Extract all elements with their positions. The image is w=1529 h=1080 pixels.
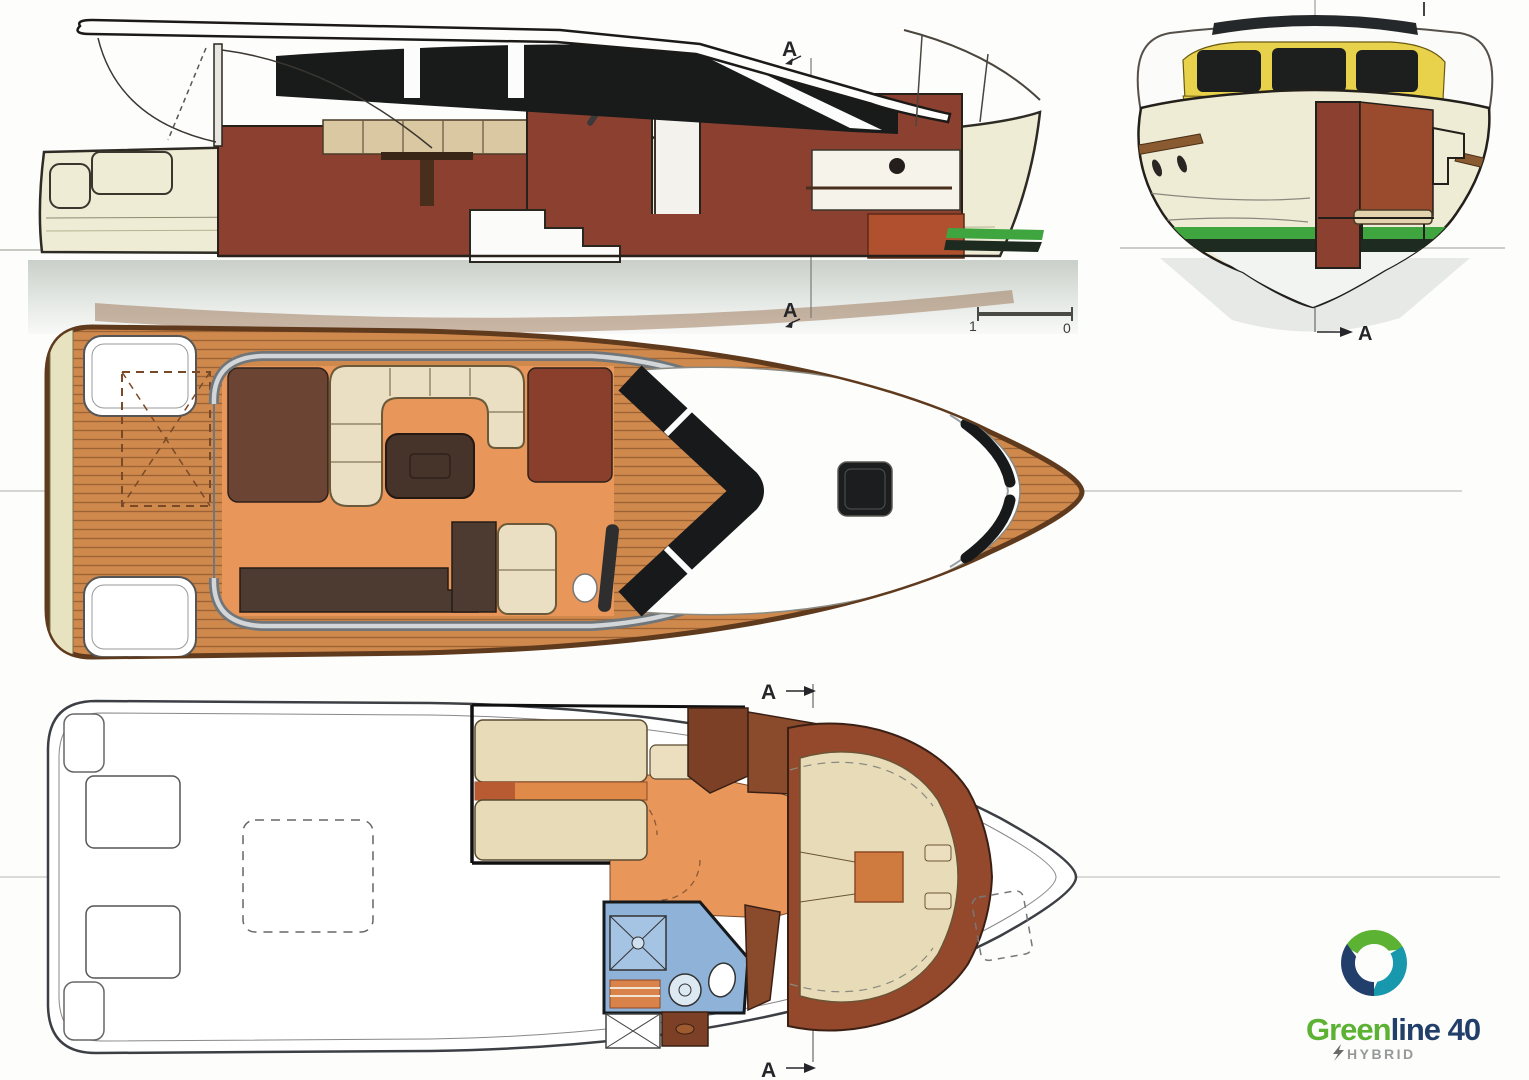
stern-seat-port <box>84 336 196 416</box>
engine-hatch-1 <box>86 776 180 848</box>
berth-runner <box>855 852 903 902</box>
scale-right-label: 0 <box>1063 320 1071 336</box>
brand-tagline: HYBRID <box>1347 1046 1416 1062</box>
salon-sofa-side <box>323 120 527 154</box>
aft-cabin-bed-1 <box>475 720 647 782</box>
brand-wordmark: Greenline 40 <box>1306 1012 1480 1047</box>
transom-pad-starboard <box>64 982 104 1040</box>
hull-stripe-green <box>946 228 1044 240</box>
brand-logo: Greenline 40 HYBRID <box>1306 930 1480 1062</box>
brand-green-part: Green <box>1306 1012 1391 1047</box>
salon-table <box>386 434 474 498</box>
helm-seat <box>498 524 556 614</box>
side-elevation-view: A A 1 0 <box>0 20 1078 336</box>
roof-support-post <box>214 44 222 146</box>
section-marker-a-side-top: A <box>782 38 801 65</box>
bath-mat <box>610 980 660 1008</box>
transom-pad-port <box>64 714 104 772</box>
section-label-a: A <box>761 681 776 704</box>
main-deck-plan-view <box>0 327 1462 657</box>
engine-hatch-2 <box>86 906 180 978</box>
brand-navy-part: line 40 <box>1391 1012 1481 1047</box>
salon-table-side <box>381 152 473 160</box>
salon-cabinet-starboard <box>528 368 612 482</box>
plans-drawing: A A 1 0 <box>0 0 1529 1080</box>
section-label-a: A <box>1358 323 1372 345</box>
salon-cabinet-aft <box>228 368 328 502</box>
section-label-a: A <box>782 38 797 61</box>
section-label-a: A <box>761 1059 776 1080</box>
wardrobe <box>688 708 748 793</box>
bow-rail <box>904 30 1040 100</box>
lower-deck-plan-view: A A <box>0 681 1500 1080</box>
scale-left-label: 1 <box>969 318 977 334</box>
sink <box>669 974 701 1006</box>
deck-hatch <box>838 462 892 516</box>
bathroom <box>604 902 780 1048</box>
section-marker-a-lower-top: A <box>761 681 816 704</box>
porthole <box>889 158 905 174</box>
bow-section-view: A <box>1120 0 1512 345</box>
bow-berth-side <box>812 150 960 210</box>
section-marker-a-lower-bottom: A <box>761 1059 816 1080</box>
galley-counter <box>240 568 478 612</box>
boat-plans-page: A A 1 0 <box>0 0 1529 1080</box>
aft-cabin-bed-2 <box>475 800 647 860</box>
stern-seat-starboard <box>84 577 196 657</box>
section-label-a: A <box>783 300 797 322</box>
recycle-arrows-icon <box>1330 930 1416 1005</box>
